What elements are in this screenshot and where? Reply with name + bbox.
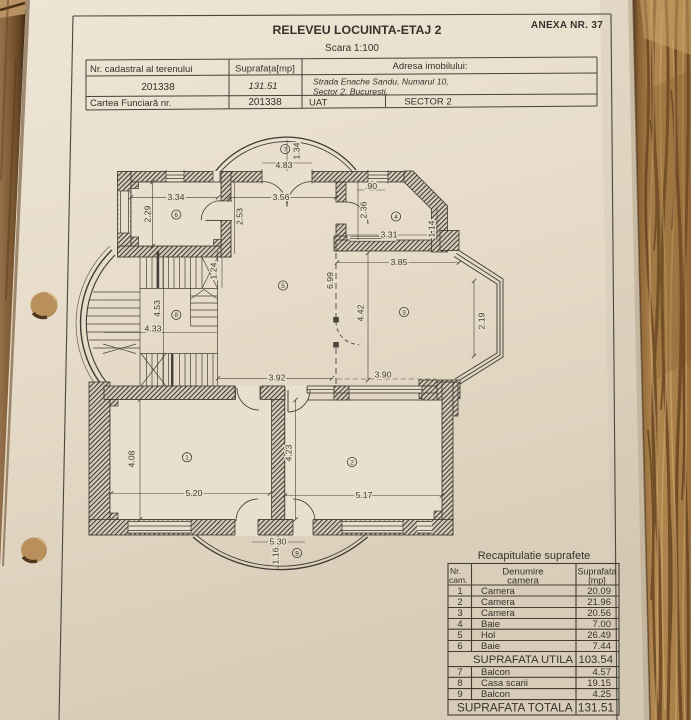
svg-text:Balcon: Balcon [481,667,510,678]
svg-text:cam.: cam. [449,575,467,585]
svg-text:6: 6 [175,212,179,219]
svg-text:3.34: 3.34 [168,192,185,202]
svg-text:[mp]: [mp] [588,576,606,586]
svg-text:.90: .90 [365,181,377,191]
svg-text:Nr. cadastral al terenului: Nr. cadastral al terenului [90,64,192,75]
svg-text:1.16: 1.16 [271,547,281,564]
svg-text:5.30: 5.30 [270,536,287,546]
svg-text:26.49: 26.49 [587,630,611,641]
svg-text:camera: camera [507,576,539,587]
svg-text:6.99: 6.99 [325,272,335,289]
svg-text:Camera: Camera [481,586,516,597]
svg-text:2: 2 [457,597,462,608]
svg-text:2.36: 2.36 [359,201,369,218]
svg-text:4.33: 4.33 [145,324,162,334]
svg-text:Camera: Camera [481,597,516,608]
svg-text:1: 1 [185,455,189,462]
svg-text:4.53: 4.53 [152,300,162,317]
svg-text:4.57: 4.57 [593,667,612,678]
svg-text:5: 5 [281,283,285,290]
svg-text:7.00: 7.00 [593,619,612,630]
svg-text:131.51: 131.51 [578,701,614,715]
svg-text:SUPRAFATA TOTALA: SUPRAFATA TOTALA [457,701,573,715]
svg-text:Camera: Camera [481,608,516,619]
svg-text:9: 9 [457,689,462,700]
svg-text:6: 6 [457,641,462,652]
svg-text:21.96: 21.96 [587,597,611,608]
svg-text:5: 5 [457,630,462,641]
svg-text:Casa scarii: Casa scarii [481,678,528,689]
svg-text:Hol: Hol [481,630,495,641]
svg-text:2.53: 2.53 [235,208,245,225]
svg-text:4.23: 4.23 [284,444,294,461]
svg-text:3.31: 3.31 [381,230,398,240]
svg-text:Scara 1:100: Scara 1:100 [325,43,379,54]
svg-text:2: 2 [350,459,354,466]
svg-text:8: 8 [175,312,179,319]
svg-text:3: 3 [402,309,406,316]
svg-text:1.34: 1.34 [292,142,302,159]
svg-text:20.56: 20.56 [587,608,611,619]
svg-text:3.90: 3.90 [375,370,392,380]
svg-text:7.44: 7.44 [593,641,612,652]
svg-text:SECTOR 2: SECTOR 2 [404,97,451,108]
svg-text:131.51: 131.51 [248,81,277,92]
svg-text:3.85: 3.85 [391,257,408,267]
svg-text:ANEXA NR. 37: ANEXA NR. 37 [531,20,603,31]
svg-text:RELEVEU LOCUINTA-ETAJ 2: RELEVEU LOCUINTA-ETAJ 2 [273,23,442,37]
svg-text:Suprafața[mp]: Suprafața[mp] [235,64,295,75]
svg-text:3.56: 3.56 [273,192,290,202]
svg-text:201338: 201338 [141,82,175,93]
svg-text:3.92: 3.92 [269,372,286,382]
svg-text:Sector 2, Bucuresti.: Sector 2, Bucuresti. [313,87,388,97]
svg-text:Baie: Baie [481,641,500,652]
svg-text:7: 7 [283,146,287,153]
svg-text:7: 7 [457,667,462,678]
svg-text:2.19: 2.19 [477,312,487,329]
svg-text:1.14: 1.14 [427,220,437,237]
svg-text:19.15: 19.15 [587,678,611,689]
svg-text:2.29: 2.29 [143,205,153,222]
svg-text:8: 8 [457,678,462,689]
svg-text:5.17: 5.17 [356,490,373,500]
svg-text:4.42: 4.42 [356,304,366,321]
svg-text:Adresa imobilului:: Adresa imobilului: [393,61,468,72]
svg-text:103.54: 103.54 [578,654,613,666]
svg-text:4: 4 [457,619,462,630]
svg-text:4.25: 4.25 [593,689,612,700]
svg-text:4: 4 [394,214,398,221]
svg-text:Strada Enache Sandu, Numarul 1: Strada Enache Sandu, Numarul 10, [313,77,449,87]
svg-text:20.09: 20.09 [587,586,611,597]
svg-text:Cartea Funciară nr.: Cartea Funciară nr. [90,98,171,109]
svg-text:3: 3 [457,608,462,619]
svg-text:5.20: 5.20 [186,488,203,498]
svg-text:201338: 201338 [248,97,282,108]
svg-text:SUPRAFATA UTILA: SUPRAFATA UTILA [473,654,573,666]
svg-text:9: 9 [295,550,299,557]
svg-text:Recapitulatie suprafete: Recapitulatie suprafete [478,550,591,562]
svg-text:1.24: 1.24 [209,262,219,279]
svg-text:Baie: Baie [481,619,500,630]
svg-text:4.83: 4.83 [276,160,293,170]
svg-text:1: 1 [457,586,462,597]
svg-text:Balcon: Balcon [481,689,510,700]
svg-text:4.08: 4.08 [127,450,137,467]
svg-text:UAT: UAT [309,98,327,109]
